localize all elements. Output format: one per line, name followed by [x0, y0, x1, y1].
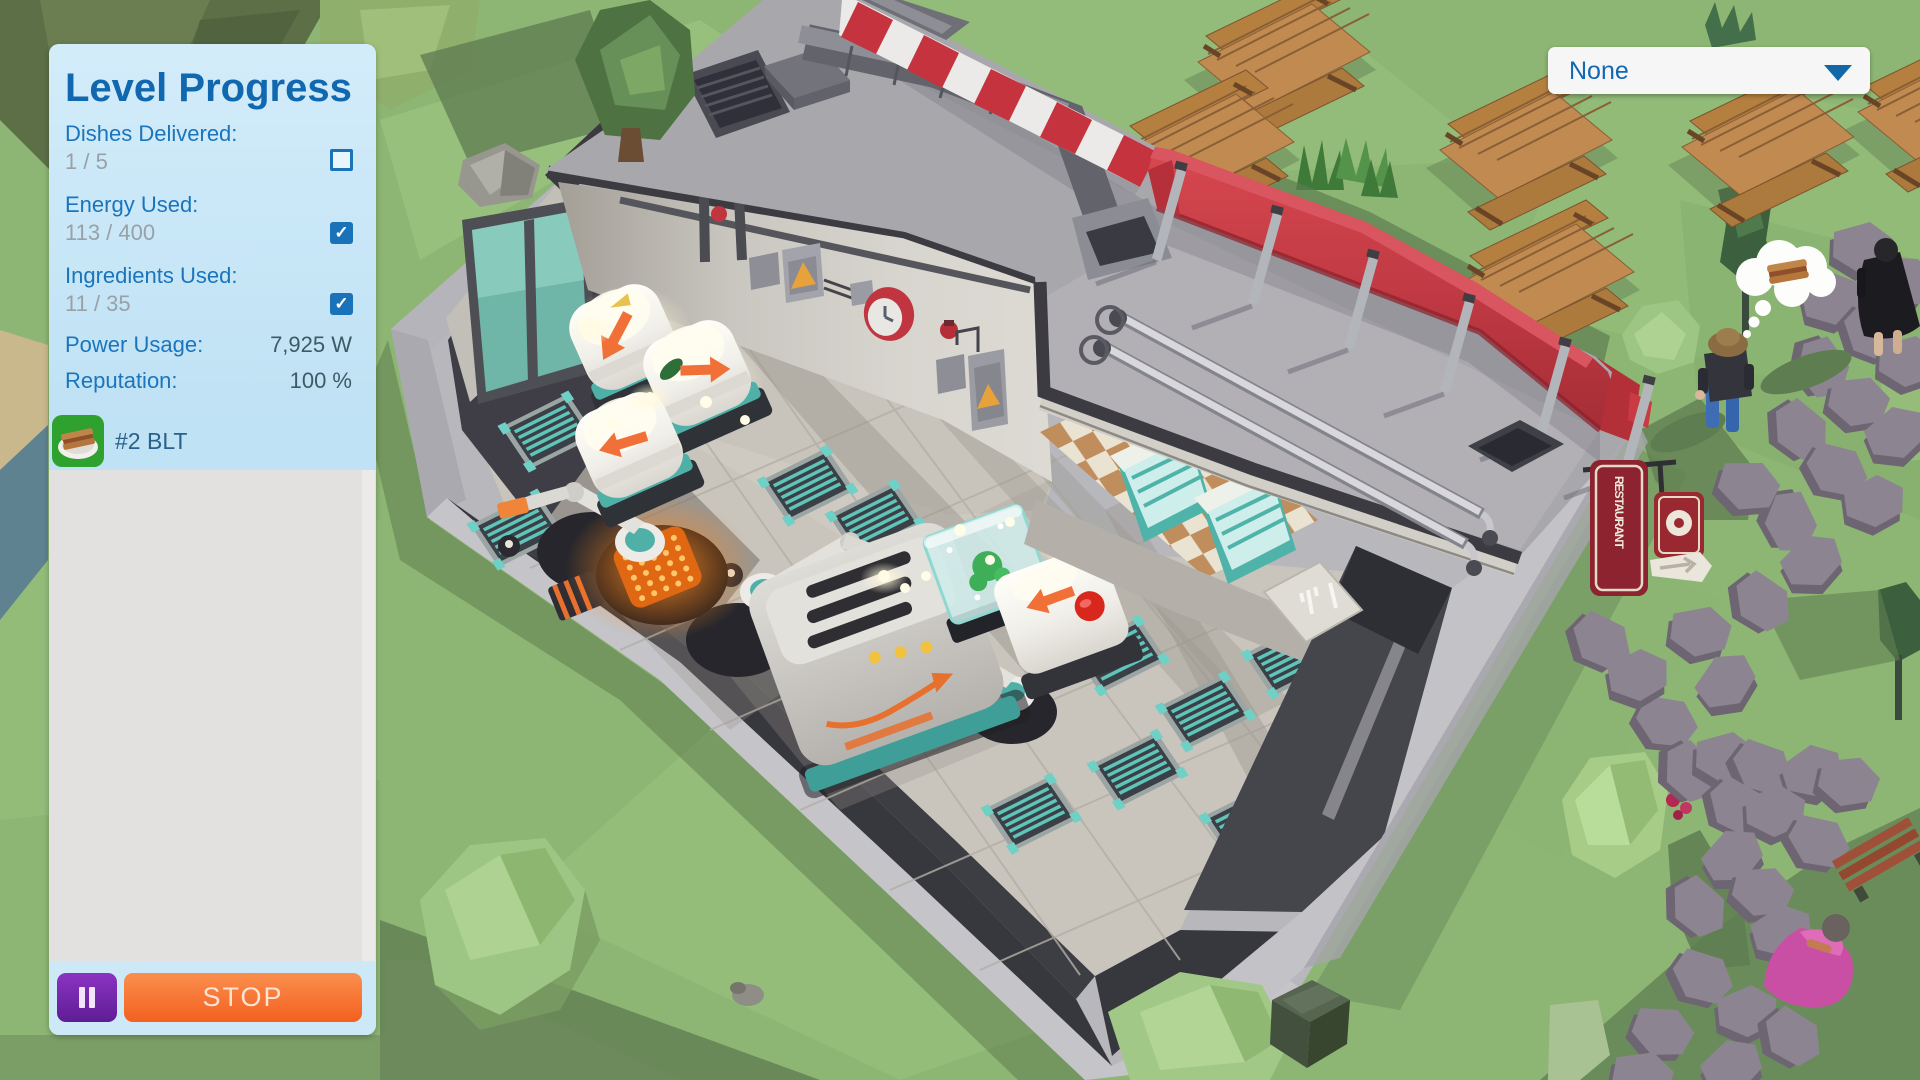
svg-text:RESTAURANT: RESTAURANT [1612, 476, 1626, 549]
